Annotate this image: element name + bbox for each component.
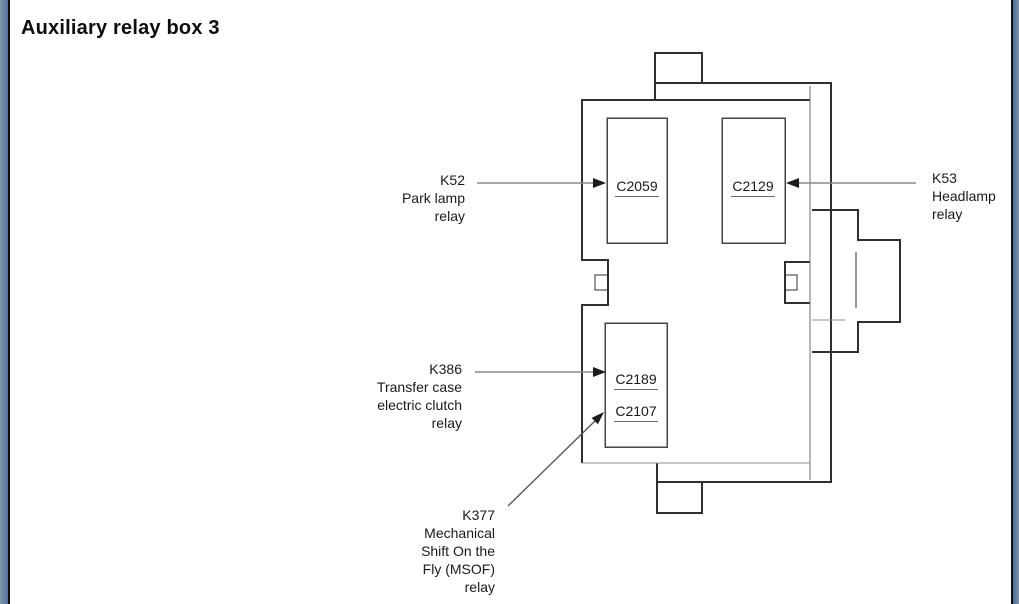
relay-label-line: electric clutch <box>312 396 462 414</box>
relay-label-line: K52 <box>315 171 465 189</box>
relay-label-k386: K386 Transfer case electric clutch relay <box>312 360 462 432</box>
relay-label-k53: K53 Headlamp relay <box>932 169 1019 223</box>
screen: Auxiliary relay box 3 <box>0 0 1019 604</box>
relay-label-line: Headlamp <box>932 187 1019 205</box>
cover-right-outline <box>657 83 831 482</box>
top-mount-tab <box>655 53 702 83</box>
connector-label-c2189: C2189 <box>596 370 676 390</box>
relay-label-line: K386 <box>312 360 462 378</box>
relay-label-line: relay <box>315 207 465 225</box>
relay-label-line: Park lamp <box>315 189 465 207</box>
relay-label-line: Transfer case <box>312 378 462 396</box>
relay-label-k377: K377 Mechanical Shift On the Fly (MSOF) … <box>345 506 495 596</box>
connector-label-text: C2129 <box>731 177 774 197</box>
left-notch-tab <box>595 275 608 290</box>
relay-label-line: K53 <box>932 169 1019 187</box>
relay-label-line: Shift On the <box>345 542 495 560</box>
relay-label-line: relay <box>312 414 462 432</box>
connector-label-c2059: C2059 <box>597 177 677 197</box>
relay-label-line: Fly (MSOF) <box>345 560 495 578</box>
bottom-mount-tab <box>657 463 702 513</box>
connector-label-text: C2107 <box>614 402 657 422</box>
relay-label-line: relay <box>345 578 495 596</box>
relay-label-k52: K52 Park lamp relay <box>315 171 465 225</box>
connector-label-text: C2189 <box>614 370 657 390</box>
right-notch-tab <box>785 275 797 290</box>
relay-label-line: relay <box>932 205 1019 223</box>
connector-label-c2129: C2129 <box>713 177 793 197</box>
relay-label-line: Mechanical <box>345 524 495 542</box>
connector-label-c2107: C2107 <box>596 402 676 422</box>
relay-label-line: K377 <box>345 506 495 524</box>
connector-label-text: C2059 <box>615 177 658 197</box>
relay-box-diagram <box>0 0 1019 604</box>
